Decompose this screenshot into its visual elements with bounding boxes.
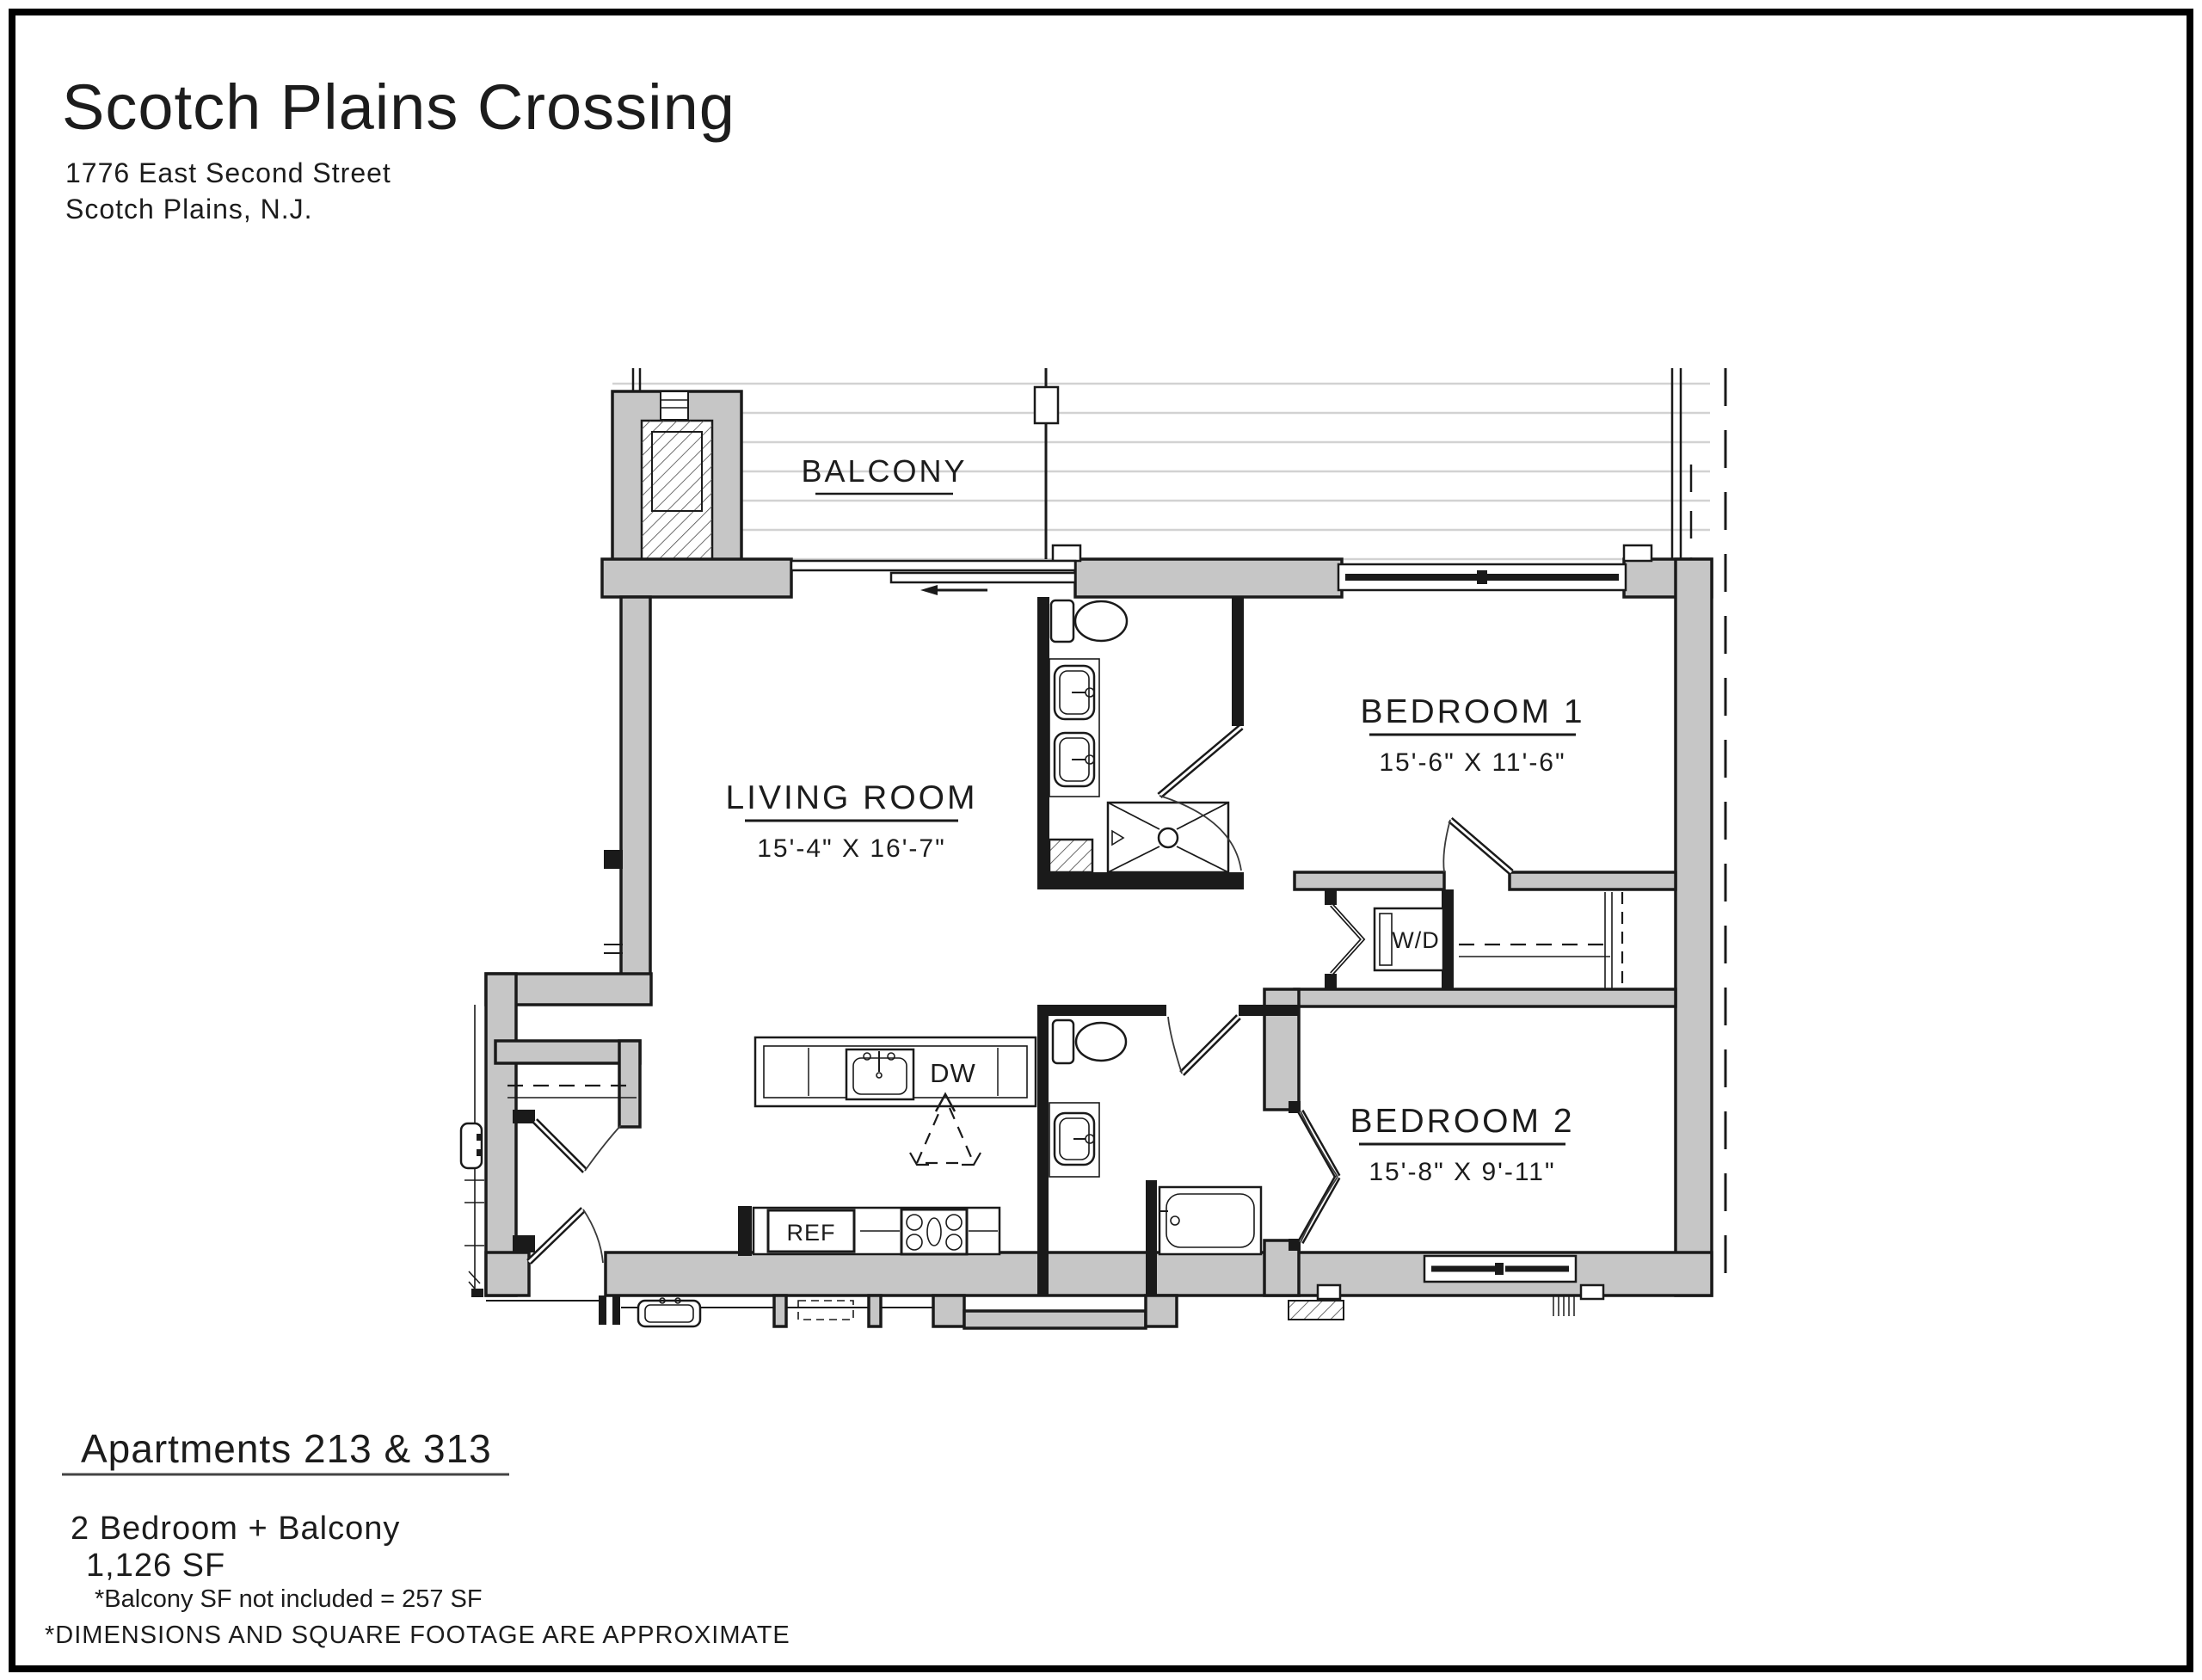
floor-plan-drawing: Scotch Plains Crossing 1776 East Second …: [0, 0, 2202, 1680]
plumbing-chase: [1049, 840, 1092, 872]
project-address-line2: Scotch Plains, N.J.: [65, 194, 313, 225]
kitchen-counter: REF: [738, 1206, 1000, 1256]
vanity-sink: [1049, 1103, 1099, 1177]
bath1-right-wall: [1232, 597, 1244, 726]
right-wall: [1676, 559, 1712, 1295]
bifold-door: [1332, 905, 1362, 974]
railing-post: [1624, 545, 1651, 561]
unit-type: 2 Bedroom + Balcony: [71, 1511, 400, 1547]
bottom-left-corner: [486, 1252, 529, 1295]
left-wall-lower: [486, 974, 516, 1295]
kitchen-bath2-wall: [1037, 1005, 1049, 1295]
balcony-railing: [633, 368, 1691, 568]
project-title: Scotch Plains Crossing: [62, 71, 735, 143]
bedroom1-label: BEDROOM 1: [1360, 693, 1584, 730]
living-room-label: LIVING ROOM: [725, 779, 977, 816]
slide-direction-arrow: [920, 585, 938, 595]
unit-area: 1,126 SF: [86, 1548, 225, 1584]
washer-dryer-label: W/D: [1392, 927, 1439, 953]
living-room-left-wall: [621, 597, 650, 976]
bath1-left-wall: [1037, 597, 1049, 874]
balcony-deck-lines: [612, 384, 1710, 559]
entry-door: [529, 1209, 603, 1263]
top-wall-middle: [1075, 559, 1342, 597]
entry-closet-right-wall: [619, 1041, 640, 1127]
tub-enclosure-wall: [1146, 1180, 1157, 1295]
footer: Apartments 213 & 313 2 Bedroom + Balcony…: [45, 1426, 790, 1649]
kitchen: DW REF: [738, 1037, 1036, 1256]
header: Scotch Plains Crossing 1776 East Second …: [62, 71, 735, 225]
bath2-top-wall-right: [1239, 1005, 1299, 1016]
kitchen-island: DW: [755, 1037, 1036, 1106]
project-address-line1: 1776 East Second Street: [65, 157, 391, 188]
bedroom1-door: [1443, 820, 1511, 872]
toilet: [1051, 600, 1127, 642]
refrigerator-label: REF: [787, 1220, 836, 1246]
bedroom1-bottom-wall-right: [1510, 872, 1676, 889]
top-wall-left: [602, 559, 791, 597]
bedroom1-bottom-wall-left: [1295, 872, 1444, 889]
shower: [1108, 803, 1228, 872]
bath2-top-wall-left: [1037, 1005, 1166, 1016]
floor-plan-page: Scotch Plains Crossing 1776 East Second …: [0, 0, 2202, 1680]
bath2-door: [1168, 1017, 1239, 1074]
wall-notch: [604, 850, 623, 869]
sliding-glass-door: [791, 561, 1075, 595]
dishwasher-label: DW: [930, 1058, 976, 1088]
disclaimer: *DIMENSIONS AND SQUARE FOOTAGE ARE APPRO…: [45, 1622, 790, 1649]
bedroom1-closet: [1459, 892, 1622, 989]
bath1-bottom-wall: [1037, 872, 1244, 889]
bedroom2-dimensions: 15'-8" X 9'-11": [1369, 1158, 1555, 1186]
living-room-dimensions: 15'-4" X 16'-7": [757, 834, 946, 863]
railing-post: [1053, 545, 1080, 561]
bedroom2-double-doors: [1289, 1101, 1338, 1251]
bedroom2-label: BEDROOM 2: [1350, 1103, 1574, 1140]
railing-post: [1035, 387, 1058, 423]
balcony-note: *Balcony SF not included = 257 SF: [95, 1585, 483, 1613]
balcony-label: BALCONY: [801, 453, 967, 489]
chimney-structure: [612, 391, 741, 575]
entry-closet-door: [535, 1121, 621, 1171]
kitchen-sink: [846, 1049, 913, 1099]
double-vanity: [1049, 659, 1099, 797]
toilet: [1053, 1020, 1126, 1063]
page-border: [12, 12, 2190, 1669]
bedroom2-window: [1424, 1256, 1576, 1282]
washer-dryer-closet: W/D: [1332, 905, 1443, 974]
bedroom1-dimensions: 15'-6" X 11'-6": [1379, 748, 1565, 777]
closet-strip-bottom-wall: [1295, 989, 1676, 1006]
bedroom1-window: [1338, 564, 1626, 590]
unit-title: Apartments 213 & 313: [81, 1426, 492, 1471]
bathtub: [1159, 1187, 1261, 1254]
neighbor-left-fragments: [461, 1005, 484, 1297]
master-bathroom: [1049, 600, 1241, 872]
